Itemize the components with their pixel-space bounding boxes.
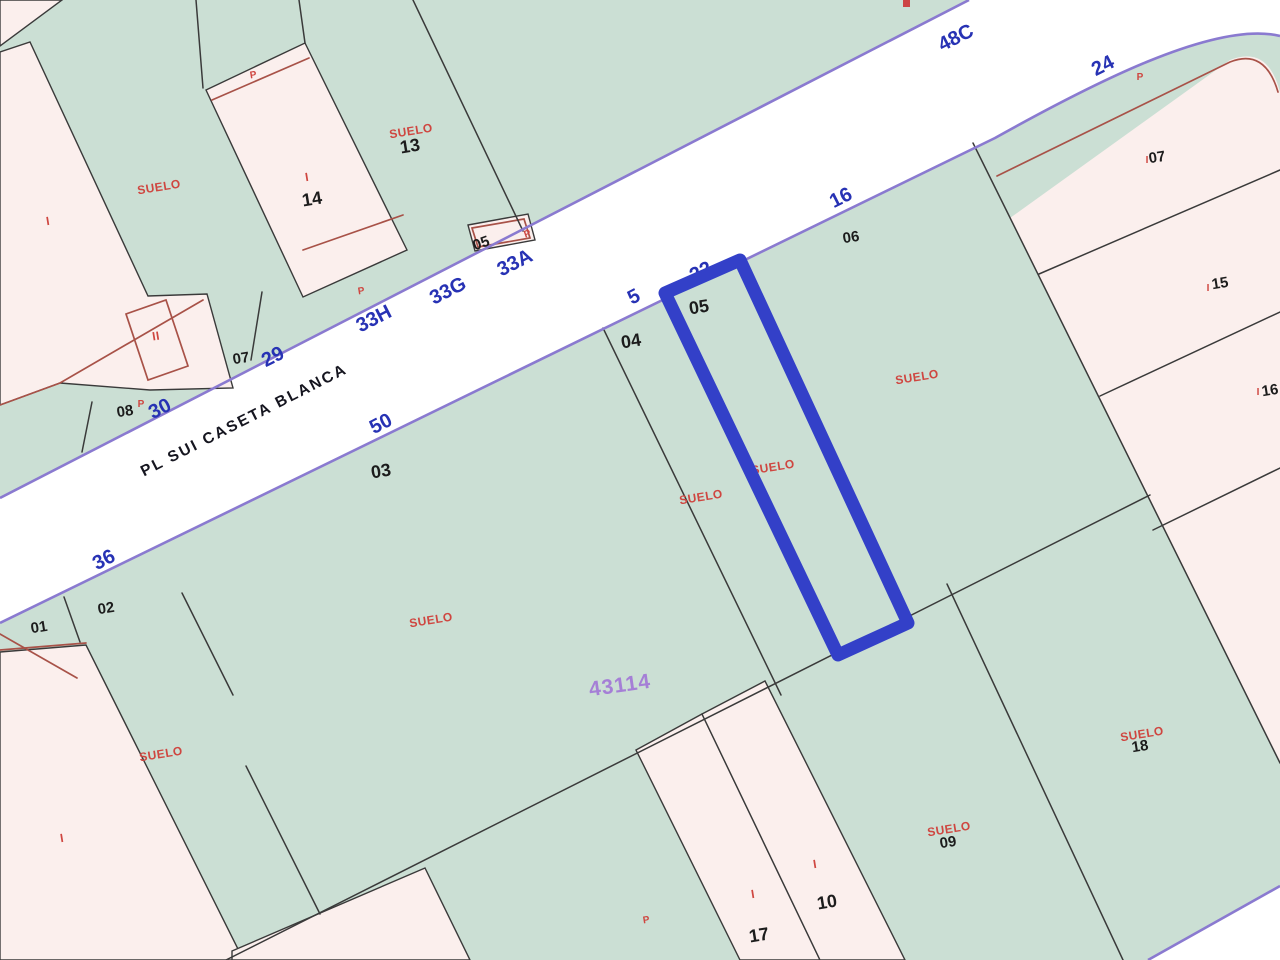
parcel-number: 10	[816, 891, 839, 914]
parcel-number: 06	[842, 228, 861, 247]
parcel-number: 08	[116, 402, 135, 421]
parcel-number-highlighted: 05	[688, 296, 711, 319]
parcel-number: 09	[939, 833, 958, 852]
parcel-number: 07	[1148, 148, 1167, 167]
parcel-number: 15	[1211, 274, 1230, 293]
parcel-number: 18	[1131, 737, 1150, 756]
class-mark: I	[1207, 283, 1210, 294]
class-mark: P	[138, 399, 145, 410]
parcel-number: 03	[370, 460, 393, 483]
parcel-number: 02	[97, 599, 116, 618]
class-mark: I	[1146, 155, 1149, 166]
parcel-number: 04	[620, 330, 643, 353]
parcel-number: 13	[399, 135, 422, 158]
cadastral-map-viewport: SUELO SUELO SUELO SUELO SUELO SUELO SUEL…	[0, 0, 1280, 960]
parcel-number: 16	[1261, 381, 1280, 400]
cadastral-map: SUELO SUELO SUELO SUELO SUELO SUELO SUEL…	[0, 0, 1280, 960]
parcel-number: 17	[748, 924, 771, 947]
parcel-number: 01	[30, 618, 49, 637]
parcel-number: 14	[301, 188, 324, 211]
clipped-red-mark	[903, 0, 910, 7]
class-mark: P	[1137, 72, 1144, 83]
class-mark: I	[1257, 387, 1260, 398]
parcel-number: 07	[232, 349, 251, 368]
